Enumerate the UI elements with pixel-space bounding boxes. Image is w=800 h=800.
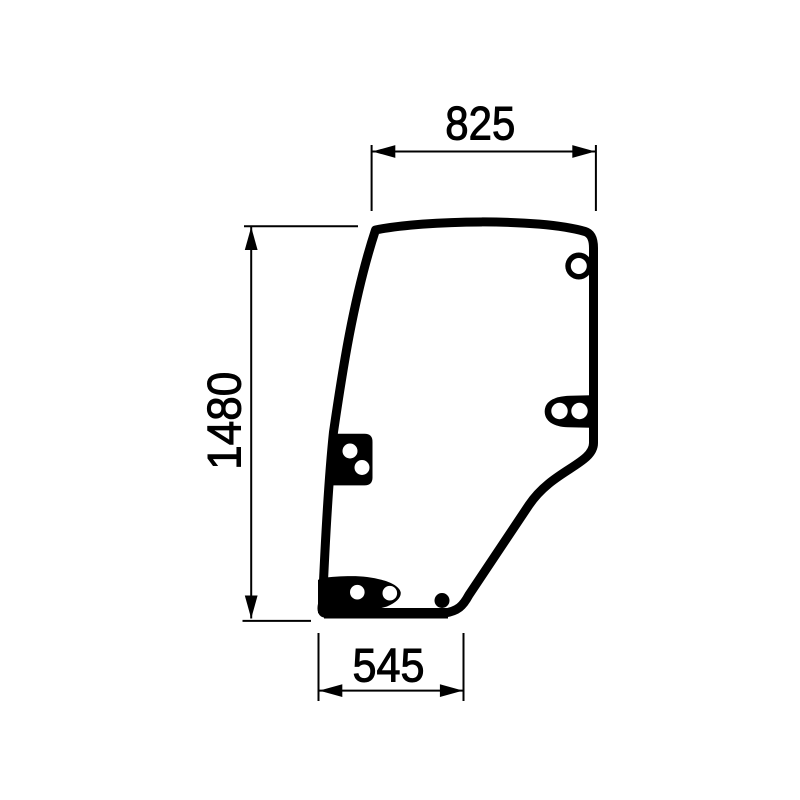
svg-text:825: 825	[445, 97, 515, 150]
svg-text:545: 545	[353, 639, 425, 692]
svg-text:1480: 1480	[198, 372, 251, 470]
